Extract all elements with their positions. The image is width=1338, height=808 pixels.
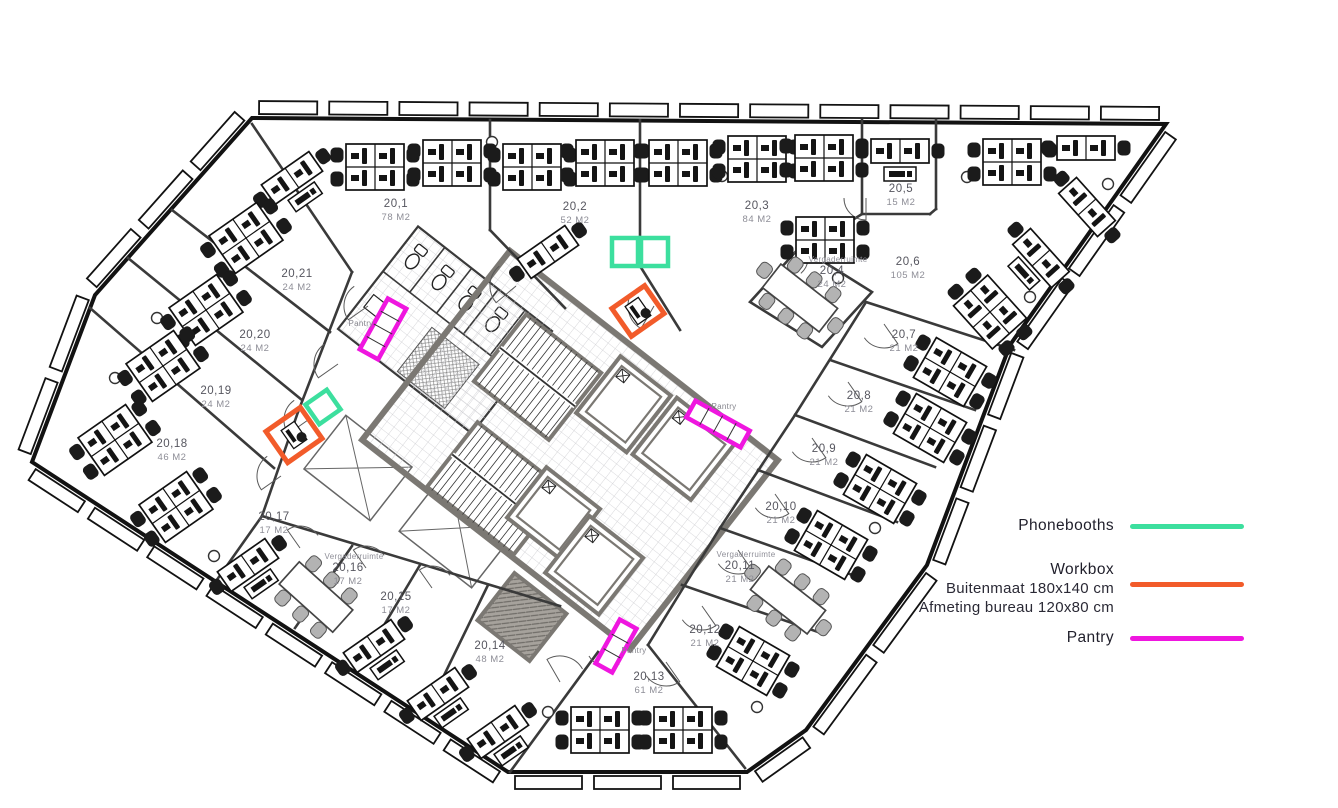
svg-text:17 M2: 17 M2 <box>382 605 411 616</box>
svg-text:20,3: 20,3 <box>745 200 769 212</box>
svg-text:20,8: 20,8 <box>847 390 871 402</box>
svg-text:20,7: 20,7 <box>892 329 916 341</box>
legend-label-pantry: Pantry <box>1067 629 1114 647</box>
legend-item-workbox: Workbox Buitenmaat 180x140 cm Afmeting b… <box>872 561 1244 617</box>
svg-text:20,11: 20,11 <box>725 560 755 572</box>
svg-text:78 M2: 78 M2 <box>382 212 411 223</box>
svg-text:20,15: 20,15 <box>380 591 411 603</box>
legend-sublabel-workbox-outer: Buitenmaat 180x140 cm <box>919 579 1114 598</box>
svg-text:20,21: 20,21 <box>281 268 312 280</box>
svg-text:52 M2: 52 M2 <box>561 215 590 226</box>
legend-sublabel-workbox-desk: Afmeting bureau 120x80 cm <box>919 598 1114 617</box>
svg-text:Vergaderruimte: Vergaderruimte <box>717 550 776 559</box>
svg-text:20,10: 20,10 <box>765 501 796 513</box>
svg-text:15 M2: 15 M2 <box>887 197 916 208</box>
svg-text:Vergaderruimte: Vergaderruimte <box>809 255 868 264</box>
pantry-label-2: Pantry <box>622 646 647 655</box>
floor-plan-drawing: 20,178 M220,252 M220,384 M2Vergaderruimt… <box>0 0 1338 808</box>
svg-text:24 M2: 24 M2 <box>202 399 231 410</box>
svg-text:48 M2: 48 M2 <box>476 654 505 665</box>
svg-text:17 M2: 17 M2 <box>260 525 289 536</box>
workbox-color-swatch <box>1130 582 1244 587</box>
svg-text:46 M2: 46 M2 <box>158 452 187 463</box>
pantry-label-1: Pantry <box>712 402 737 411</box>
svg-text:21 M2: 21 M2 <box>890 343 919 354</box>
floor-plan-page: 20,178 M220,252 M220,384 M2Vergaderruimt… <box>0 0 1338 808</box>
svg-text:61 M2: 61 M2 <box>635 685 664 696</box>
legend: Phonebooths Workbox Buitenmaat 180x140 c… <box>872 517 1244 647</box>
svg-text:20,16: 20,16 <box>332 562 363 574</box>
svg-text:24 M2: 24 M2 <box>818 279 847 290</box>
svg-text:21 M2: 21 M2 <box>845 404 874 415</box>
phonebooth-color-swatch <box>1130 524 1244 529</box>
svg-text:21 M2: 21 M2 <box>691 638 720 649</box>
svg-text:20,4: 20,4 <box>820 265 844 277</box>
svg-text:21 M2: 21 M2 <box>726 574 755 585</box>
legend-label-phonebooths: Phonebooths <box>1018 517 1114 535</box>
svg-text:20,13: 20,13 <box>633 671 664 683</box>
legend-item-phonebooths: Phonebooths <box>872 517 1244 535</box>
svg-text:20,2: 20,2 <box>563 201 587 213</box>
pantry-color-swatch <box>1130 636 1244 641</box>
svg-text:20,9: 20,9 <box>812 443 836 455</box>
svg-text:20,1: 20,1 <box>384 198 408 210</box>
legend-item-pantry: Pantry <box>872 629 1244 647</box>
svg-text:84 M2: 84 M2 <box>743 214 772 225</box>
svg-text:21 M2: 21 M2 <box>810 457 839 468</box>
svg-text:20,12: 20,12 <box>689 624 720 636</box>
svg-text:20,18: 20,18 <box>156 438 187 450</box>
svg-text:17 M2: 17 M2 <box>334 576 363 587</box>
svg-text:24 M2: 24 M2 <box>241 343 270 354</box>
svg-text:20,6: 20,6 <box>896 256 920 268</box>
svg-text:24 M2: 24 M2 <box>283 282 312 293</box>
svg-text:20,20: 20,20 <box>239 329 270 341</box>
svg-text:20,14: 20,14 <box>474 640 505 652</box>
svg-text:20,5: 20,5 <box>889 183 913 195</box>
svg-text:Vergaderruimte: Vergaderruimte <box>325 552 384 561</box>
pantry-label-0: Pantry <box>349 319 374 328</box>
svg-text:20,19: 20,19 <box>200 385 231 397</box>
svg-text:20,17: 20,17 <box>258 511 289 523</box>
svg-text:21 M2: 21 M2 <box>767 515 796 526</box>
svg-text:105 M2: 105 M2 <box>891 270 926 281</box>
legend-label-workbox: Workbox <box>919 561 1114 579</box>
